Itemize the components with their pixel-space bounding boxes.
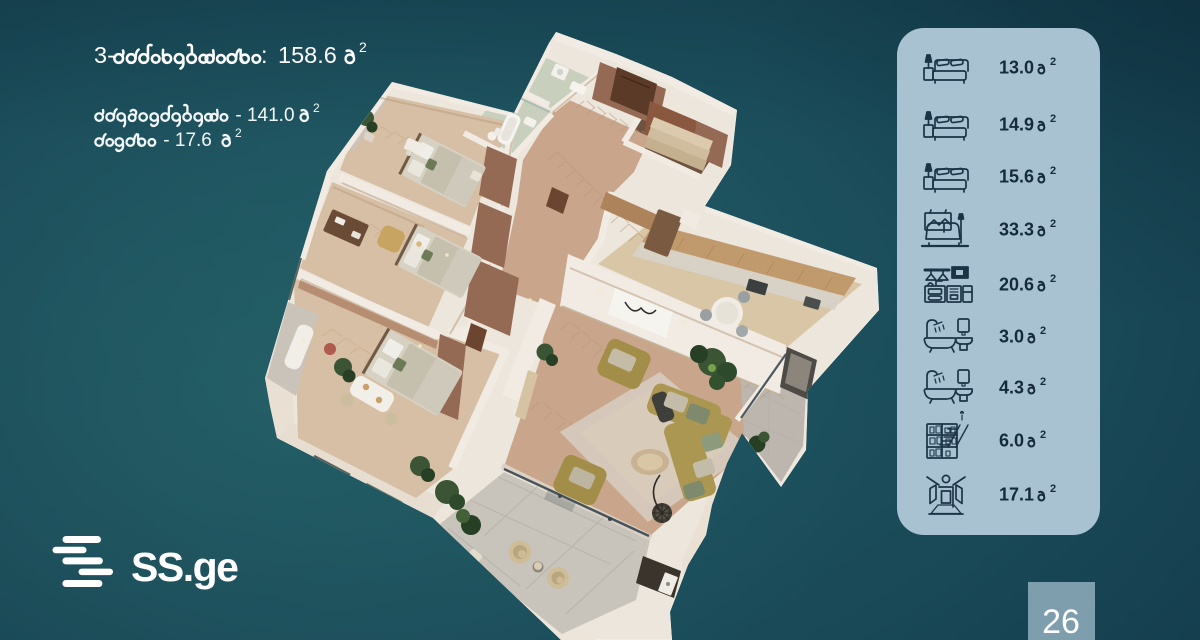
svg-text:SS.ge: SS.ge xyxy=(131,544,238,590)
svg-text:2: 2 xyxy=(1040,376,1046,388)
svg-text:4.3: 4.3 xyxy=(999,378,1024,398)
svg-text:15.6: 15.6 xyxy=(999,167,1034,187)
svg-text:14.9: 14.9 xyxy=(999,115,1034,135)
svg-text::: : xyxy=(261,42,268,68)
svg-text:2: 2 xyxy=(1050,273,1056,285)
svg-text:2: 2 xyxy=(1050,165,1056,177)
svg-text:33.3: 33.3 xyxy=(999,220,1034,240)
svg-text:2: 2 xyxy=(1040,325,1046,337)
svg-text:2: 2 xyxy=(359,39,367,55)
svg-text:17.1: 17.1 xyxy=(999,485,1034,505)
svg-text:13.0: 13.0 xyxy=(999,58,1034,78)
svg-text:2: 2 xyxy=(235,126,242,140)
svg-text:26: 26 xyxy=(1042,603,1080,640)
svg-text:6.0: 6.0 xyxy=(999,431,1024,451)
svg-text:2: 2 xyxy=(1040,429,1046,441)
svg-text:2: 2 xyxy=(1050,56,1056,68)
svg-text:- 17.6: - 17.6 xyxy=(163,130,212,151)
svg-text:3.0: 3.0 xyxy=(999,327,1024,347)
svg-text:2: 2 xyxy=(1050,113,1056,125)
svg-text:2: 2 xyxy=(313,101,320,115)
svg-text:158.6: 158.6 xyxy=(278,42,337,68)
svg-text:3-: 3- xyxy=(94,42,115,68)
svg-text:2: 2 xyxy=(1050,483,1056,495)
svg-text:- 141.0: - 141.0 xyxy=(235,105,294,126)
svg-text:2: 2 xyxy=(1050,218,1056,230)
svg-text:20.6: 20.6 xyxy=(999,275,1034,295)
